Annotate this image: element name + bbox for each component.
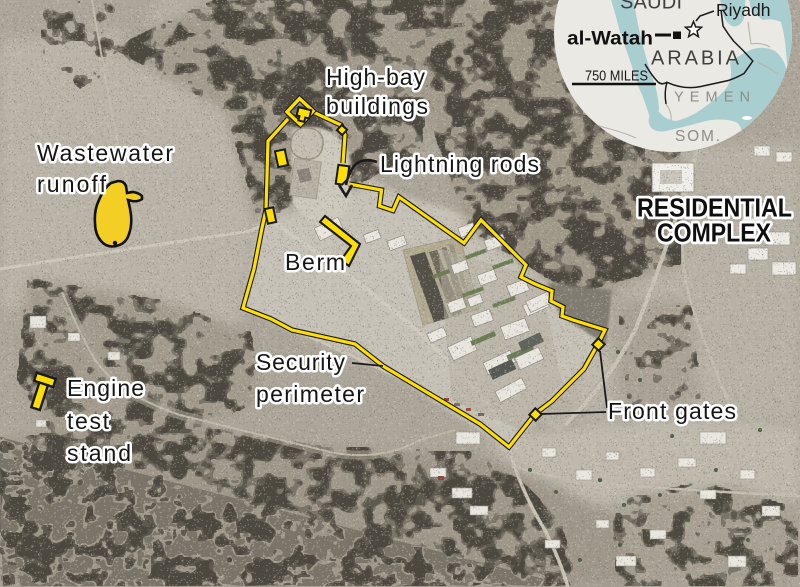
svg-text:runoff: runoff — [37, 171, 107, 197]
svg-text:750 MILES: 750 MILES — [585, 69, 648, 85]
svg-text:perimeter: perimeter — [256, 381, 364, 407]
svg-text:Security: Security — [256, 349, 346, 375]
svg-text:SOM.: SOM. — [675, 128, 723, 145]
svg-text:stand: stand — [67, 440, 131, 466]
svg-text:Engine: Engine — [67, 375, 144, 401]
svg-text:ARABIA: ARABIA — [651, 48, 743, 70]
svg-text:SAUDI: SAUDI — [620, 0, 686, 14]
svg-text:Riyadh: Riyadh — [716, 0, 770, 20]
svg-text:Wastewater: Wastewater — [37, 140, 173, 166]
svg-text:High-bay: High-bay — [326, 64, 426, 90]
svg-text:al-Watah: al-Watah — [567, 28, 653, 50]
svg-text:buildings: buildings — [326, 93, 428, 119]
svg-text:COMPLEX: COMPLEX — [657, 218, 772, 248]
svg-text:Front gates: Front gates — [608, 398, 736, 424]
svg-text:Lightning rods: Lightning rods — [380, 151, 539, 177]
svg-text:YEMEN: YEMEN — [674, 90, 753, 106]
